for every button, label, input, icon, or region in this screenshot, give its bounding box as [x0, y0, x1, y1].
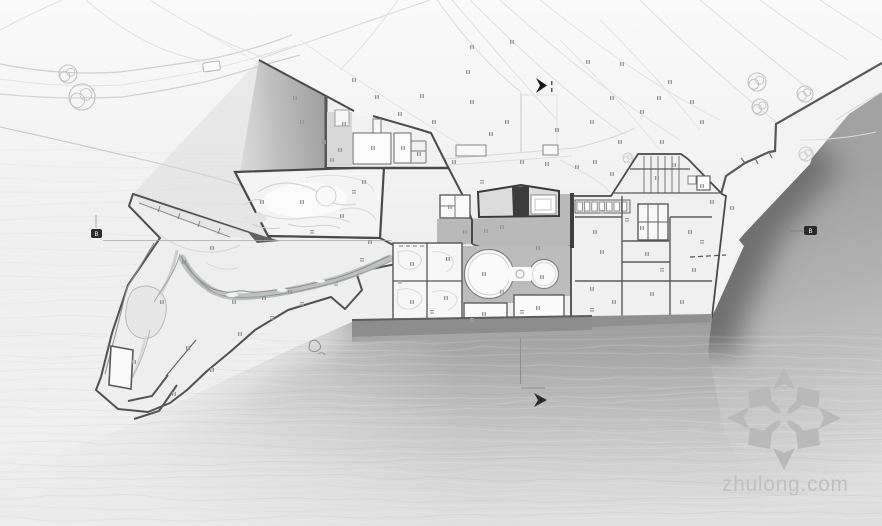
svg-text:zhulong.com: zhulong.com	[722, 473, 848, 496]
svg-text:B: B	[94, 232, 98, 238]
svg-text:B: B	[808, 229, 812, 235]
